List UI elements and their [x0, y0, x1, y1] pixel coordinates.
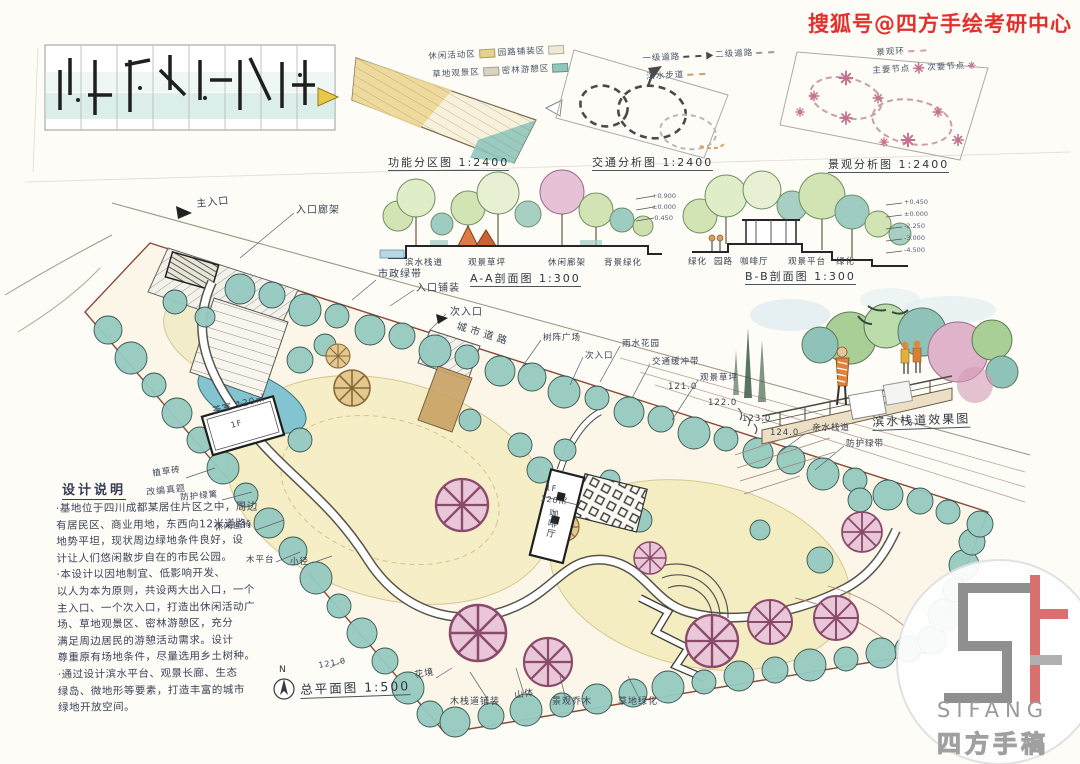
- section-aa-label: 观景草坪: [468, 259, 506, 268]
- legend-item: 一级道路: [642, 52, 680, 64]
- logo-name: SIFANG: [893, 698, 1080, 722]
- north-label: N: [279, 666, 287, 675]
- section-aa-label: 背景绿化: [604, 259, 642, 268]
- elevation-mark: +0.900: [652, 193, 676, 200]
- notes-line: 计让人们悠闲散步自在的市民公园。: [56, 549, 214, 567]
- landscape-diagram-caption: 景观分析图 1:2400: [828, 158, 949, 173]
- notes-line: 地势平坦，现状周边绿地条件良好，设: [56, 532, 214, 550]
- plan-label-secondary-entrance2: 次入口: [585, 352, 614, 361]
- contour-label: 124.0: [770, 429, 799, 438]
- flower-node-icon: [912, 61, 926, 75]
- plan-label-rain-garden: 雨水花园: [622, 340, 660, 349]
- dash-icon: [687, 72, 705, 75]
- elevation-mark: -0.450: [652, 215, 673, 222]
- watermark-text: 搜狐号@四方手绘考研中心: [742, 8, 1072, 38]
- notes-line: 满足周边居民的游憩活动需求。设计: [57, 632, 215, 650]
- plan-label-entrance-pergola: 入口廊架: [296, 206, 340, 216]
- notes-line: 有居民区、商业用地，东西向12米道路，: [56, 516, 214, 534]
- legend-item: 次要节点: [927, 61, 965, 73]
- traffic-diagram-caption: 交通分析图 1:2400: [592, 156, 713, 171]
- arrow-icon: [706, 51, 713, 59]
- elevation-mark: -2.250: [904, 223, 925, 230]
- perspective-caption: 滨水栈道效果图: [872, 412, 971, 432]
- legend-swatch-yellow: [479, 49, 495, 59]
- north-arrow-icon: [274, 679, 294, 699]
- secondary-entrance-arrow-icon: [436, 314, 448, 324]
- legend-item: 主要节点: [872, 64, 910, 76]
- function-diagram-caption: 功能分区图 1:2400: [388, 156, 509, 171]
- legend-swatch-teal: [552, 63, 568, 73]
- plan-label-wood-deck: 木平台: [246, 556, 275, 565]
- design-notes: ·基地位于四川成都某居住片区之中，周边 有居民区、商业用地，东西向12米道路， …: [56, 499, 216, 716]
- plan-label-boardwalk-paving: 木栈道铺装: [450, 698, 500, 707]
- plan-label-entrance-paving: 入口铺装: [416, 284, 460, 294]
- plan-label-landscape-trees: 景观乔木: [552, 698, 592, 707]
- section-aa-caption: A-A剖面图 1:300: [470, 272, 581, 287]
- logo-cn-name: 四方手稿: [893, 724, 1080, 759]
- plan-label-lawn: 观景草坪: [700, 374, 738, 383]
- title-art: [45, 45, 338, 130]
- dash-icon: [908, 49, 926, 52]
- section-bb-label: 绿化: [836, 258, 855, 267]
- notes-line: 场、草地观景区、密林游憩区，充分: [57, 615, 215, 633]
- elevation-mark: ±0.000: [904, 211, 928, 218]
- contour-label: 123.0: [742, 415, 771, 424]
- section-aa-label: 滨水栈道: [405, 259, 443, 268]
- plan-label-trail: 小径: [290, 558, 309, 567]
- legend-item: 滨水步道: [646, 70, 684, 82]
- legend-item: 二级道路: [715, 48, 753, 60]
- plan-label-tree-plaza: 树阵广场: [543, 334, 581, 343]
- elevation-mark: +0.450: [904, 199, 928, 206]
- section-bb-label: 观景平台: [788, 258, 826, 267]
- section-aa-art: [380, 170, 662, 258]
- section-bb-label: 咖啡厅: [740, 258, 769, 267]
- notes-line: 以人为本为原则，共设两大出入口，一个: [57, 582, 215, 600]
- legend-swatch-gray: [483, 67, 499, 77]
- contour-label: 121.0: [668, 383, 697, 392]
- legend-item: 景观环: [876, 47, 905, 58]
- plan-label-protective-green: 防护绿带: [846, 440, 884, 449]
- contour-label: 122.0: [708, 399, 737, 408]
- plan-label-cafe-floor: 1F: [545, 484, 558, 494]
- plan-label-traffic-buffer: 交通缓冲带: [652, 358, 700, 367]
- section-aa-label: 休闲廊架: [548, 259, 586, 268]
- notes-line: ·基地位于四川成都某居住片区之中，周边: [56, 499, 214, 517]
- section-bb-label: 园路: [714, 258, 733, 267]
- drawing-sheet: 搜狐号@四方手绘考研中心 休闲活动区园路铺装区 草地观景区密林游憩区 一级道路二…: [0, 0, 1080, 764]
- plan-label-municipal-green: 市政绿带: [378, 270, 422, 280]
- legend-swatch-cream: [548, 45, 564, 55]
- section-bb-caption: B-B剖面图 1:300: [745, 270, 856, 285]
- notes-title: 设计说明: [62, 479, 126, 500]
- notes-line: 主入口、一个次入口，打造出休闲活动广: [57, 599, 215, 617]
- notes-line: ·通过设计滨水平台、观景长廊、生态: [58, 665, 216, 683]
- notes-line: 绿地开放空间。: [58, 698, 216, 716]
- section-bb-art: [683, 171, 911, 266]
- elevation-mark: -3.000: [904, 235, 925, 242]
- notes-line: 尊重原有场地条件，尽量选用乡土树种。: [57, 649, 215, 667]
- sifang-logo: SIFANG 四方手稿: [893, 556, 1080, 764]
- dash-icon: [683, 54, 701, 57]
- section-bb-label: 绿化: [688, 258, 707, 267]
- notes-line: ·本设计以因地制宜、低影响开发、: [57, 566, 215, 584]
- plan-label-secondary-entrance: 次入口: [450, 308, 483, 318]
- flower-node-icon: [967, 61, 976, 70]
- dash-icon: [756, 51, 774, 54]
- notes-line: 绿岛、微地形等要素，打造丰富的城市: [58, 682, 216, 700]
- elevation-mark: -4.500: [904, 247, 925, 254]
- elevation-mark: ±0.000: [652, 204, 676, 211]
- plan-label-waterside-walk: 亲水栈道: [812, 424, 850, 433]
- main-entrance-arrow-icon: [176, 206, 192, 219]
- plan-label-grass-green: 草地绿化: [618, 698, 658, 707]
